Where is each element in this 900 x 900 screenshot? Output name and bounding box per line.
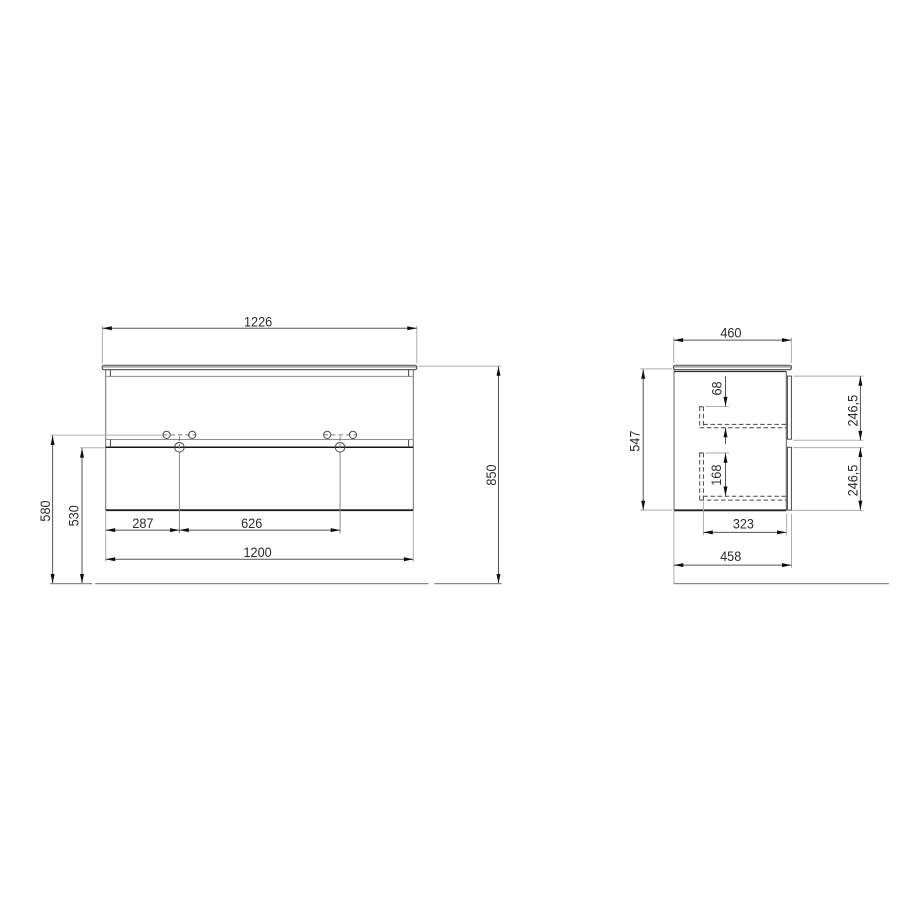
svg-text:1226: 1226 <box>244 314 272 330</box>
svg-text:460: 460 <box>720 326 741 342</box>
svg-text:580: 580 <box>38 500 54 521</box>
svg-text:1200: 1200 <box>244 545 272 561</box>
svg-text:626: 626 <box>241 516 262 532</box>
svg-text:530: 530 <box>67 505 83 526</box>
svg-text:246,5: 246,5 <box>846 465 862 497</box>
svg-text:323: 323 <box>733 517 754 533</box>
svg-text:168: 168 <box>709 465 725 486</box>
svg-text:287: 287 <box>132 516 153 532</box>
svg-text:458: 458 <box>720 549 741 565</box>
svg-text:246,5: 246,5 <box>846 395 862 427</box>
svg-text:850: 850 <box>484 464 500 485</box>
svg-text:547: 547 <box>628 431 644 452</box>
svg-text:68: 68 <box>709 381 725 395</box>
